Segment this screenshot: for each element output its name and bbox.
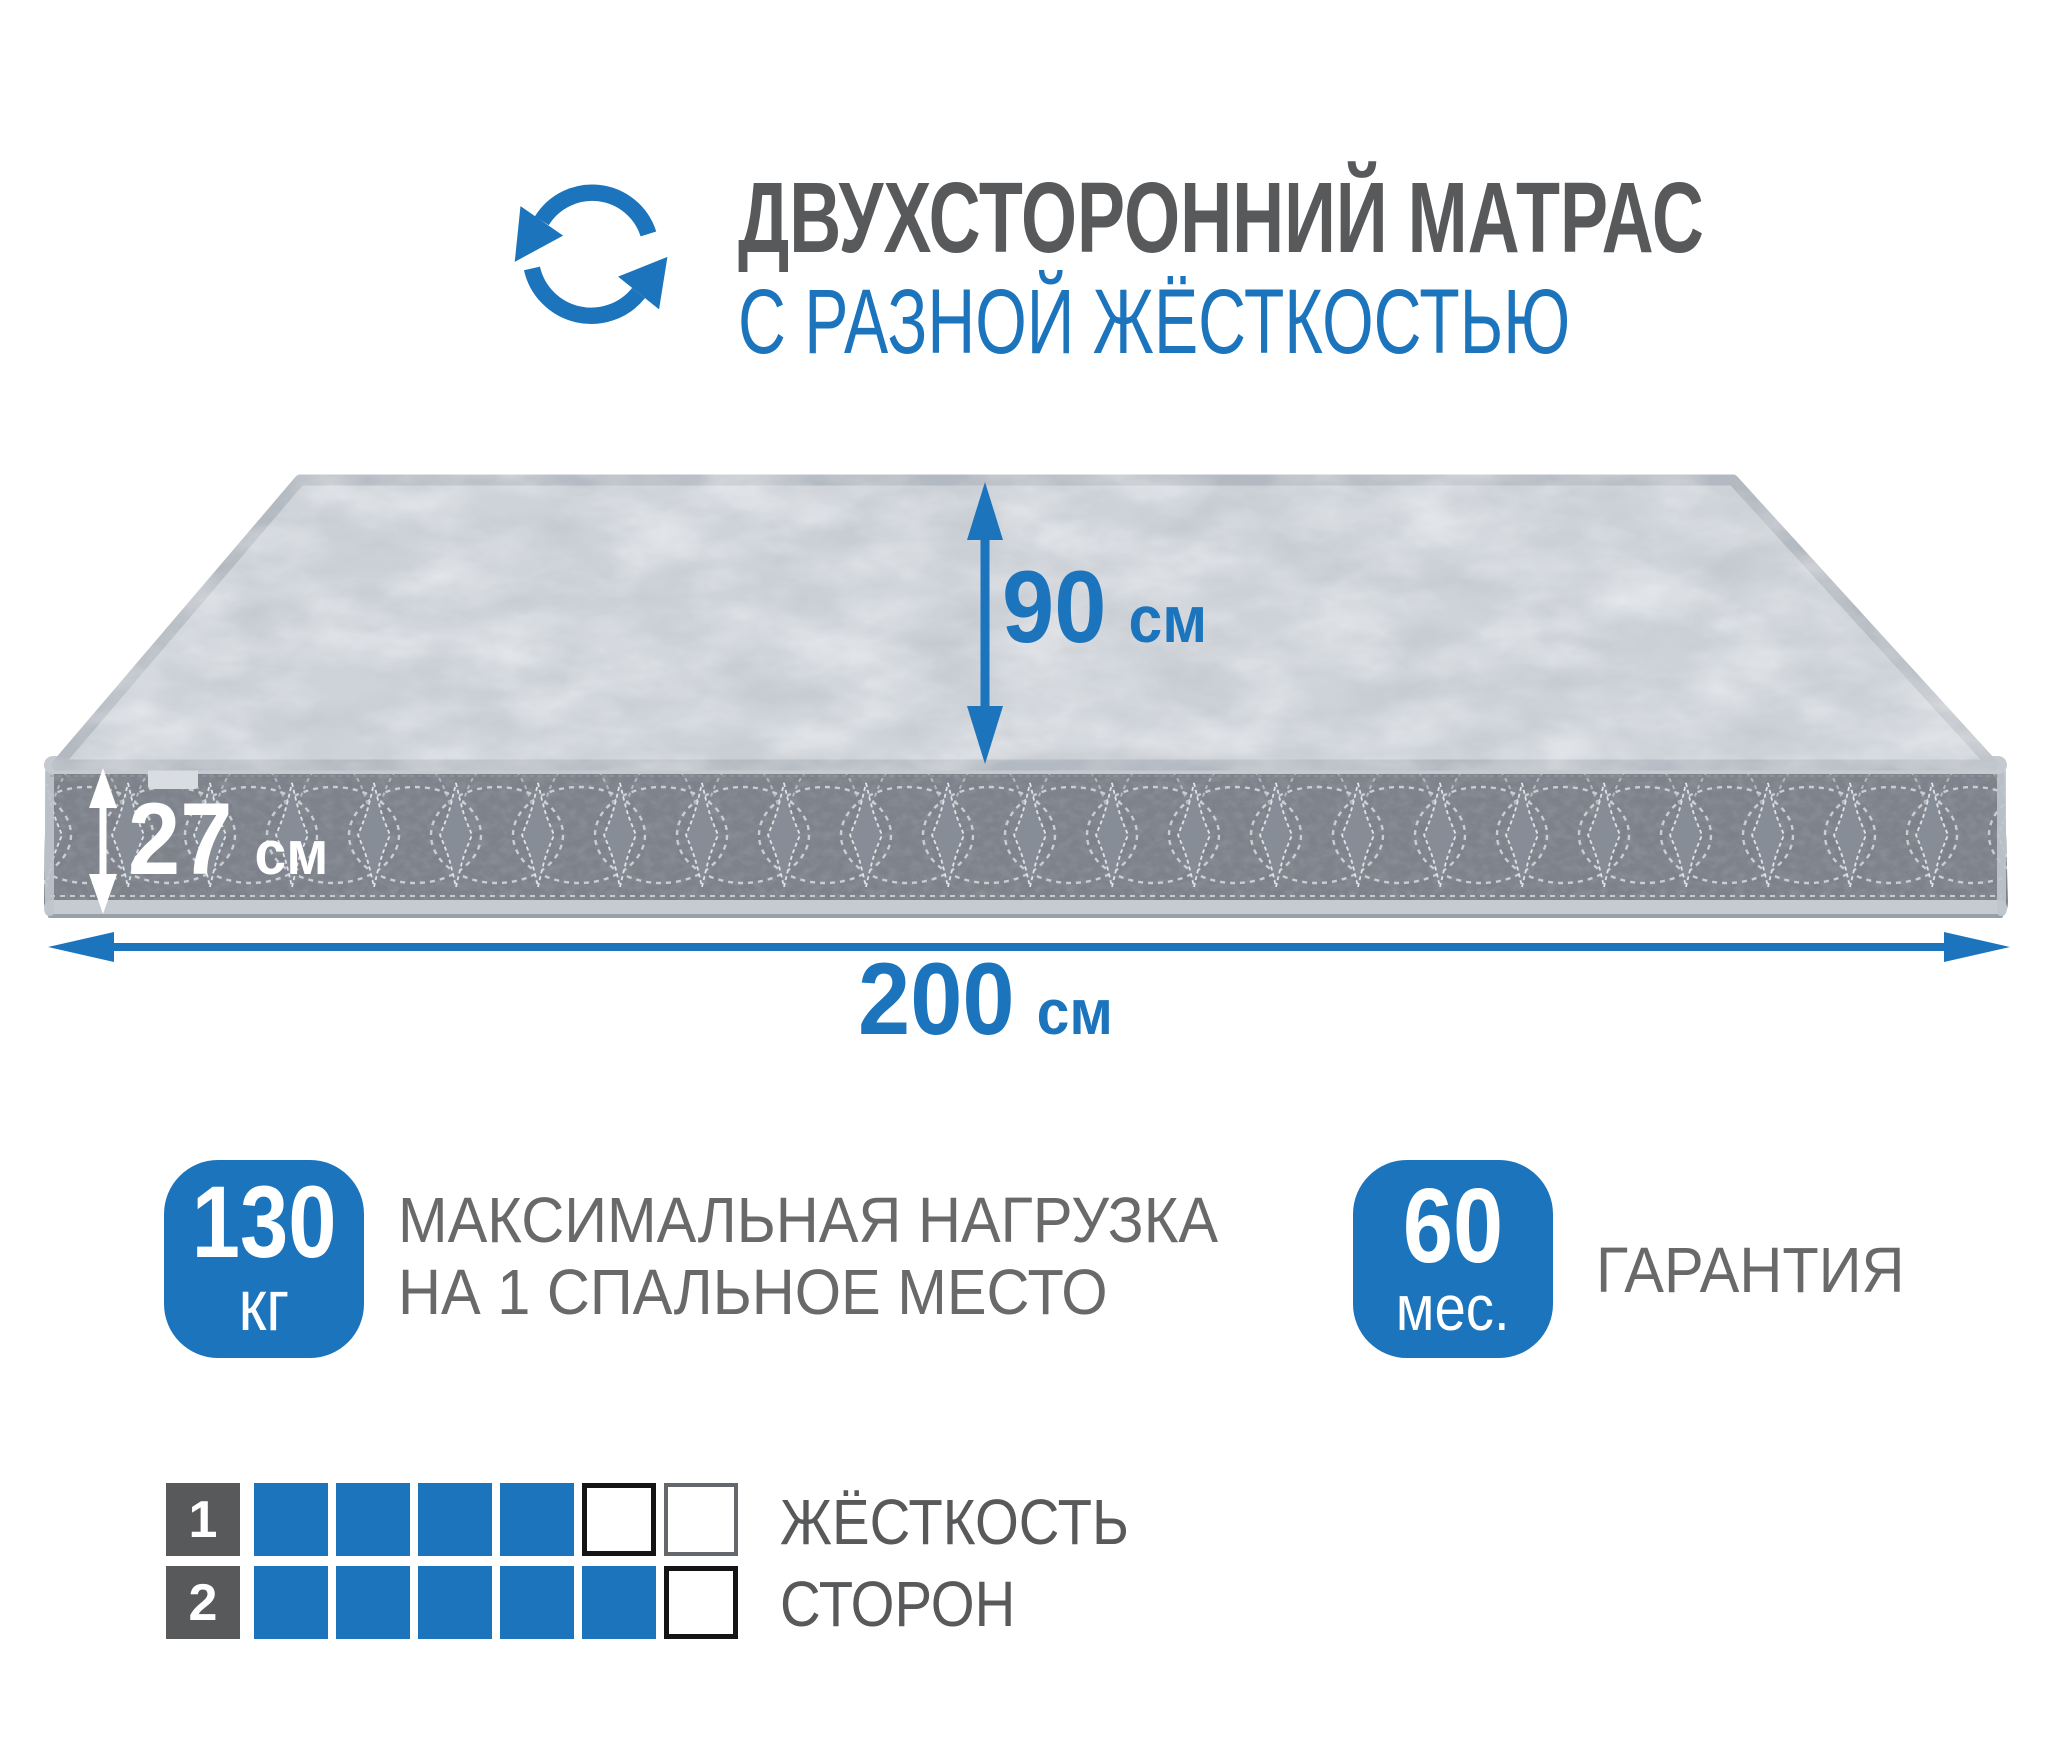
firmness-cell-filled — [254, 1483, 328, 1556]
firmness-cell-filled — [500, 1483, 574, 1556]
max-load-badge: 130 кг — [164, 1160, 364, 1358]
firmness-label-line1: ЖЁСТКОСТЬ — [780, 1490, 1177, 1554]
warranty-value: 60 — [1403, 1178, 1503, 1276]
length-dimension-label: 200см — [858, 948, 1135, 1050]
max-load-value: 130 — [192, 1176, 337, 1270]
firmness-cell-filled — [336, 1566, 410, 1639]
page-title: ДВУХСТОРОННИЙ МАТРАС — [738, 168, 2048, 268]
warranty-unit: мес. — [1396, 1276, 1510, 1340]
rotate-arrows-icon — [505, 170, 677, 334]
width-dimension-label: 90см — [1002, 556, 1225, 658]
firmness-cell-filled — [336, 1483, 410, 1556]
warranty-label: ГАРАНТИЯ — [1596, 1238, 1928, 1302]
thickness-dimension-label: 27см — [128, 788, 346, 890]
firmness-row: 1 — [166, 1483, 738, 1556]
firmness-label-line2: СТОРОН — [780, 1572, 1047, 1636]
firmness-cell-filled — [500, 1566, 574, 1639]
firmness-cell-empty-strong — [664, 1566, 738, 1639]
firmness-cell-filled — [418, 1483, 492, 1556]
firmness-row-label: 1 — [166, 1483, 240, 1556]
firmness-cell-filled — [582, 1566, 656, 1639]
firmness-row: 2 — [166, 1566, 738, 1639]
max-load-label-line2: НА 1 СПАЛЬНОЕ МЕСТО — [398, 1260, 1161, 1324]
firmness-cell-filled — [254, 1566, 328, 1639]
firmness-cell-empty-strong — [582, 1483, 656, 1556]
max-load-label-line1: МАКСИМАЛЬНАЯ НАГРУЗКА — [398, 1188, 1280, 1252]
warranty-badge: 60 мес. — [1353, 1160, 1553, 1358]
max-load-unit: кг — [239, 1270, 290, 1342]
mattress-infographic: ДВУХСТОРОННИЙ МАТРАС С РАЗНОЙ ЖЁСТКОСТЬЮ — [0, 0, 2048, 1757]
firmness-grid: 12 — [166, 1483, 738, 1639]
page-subtitle: С РАЗНОЙ ЖЁСТКОСТЬЮ — [738, 276, 1894, 368]
firmness-cell-filled — [418, 1566, 492, 1639]
mattress-illustration — [0, 440, 2048, 1020]
rotate-top-arc — [542, 193, 649, 234]
firmness-row-label: 2 — [166, 1566, 240, 1639]
firmness-cell-empty-weak — [664, 1483, 738, 1556]
